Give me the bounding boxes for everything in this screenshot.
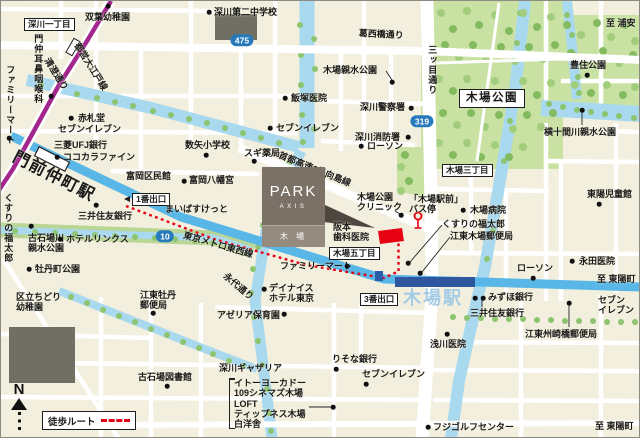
property-name: PARK xyxy=(262,183,325,200)
label-mitsubishi-ufj-bank: 三菱UFJ銀行 xyxy=(54,140,107,150)
dot-koto-kiba-post-office xyxy=(418,271,423,276)
dot-family-mart-kiba xyxy=(345,264,350,269)
label-maibasuketto: まいばすけっと xyxy=(165,204,228,214)
north-arrow-icon xyxy=(11,398,27,410)
walk-route-label: 徒歩ルート xyxy=(48,414,96,428)
label-to-urayasu: 至 浦安 xyxy=(606,18,636,28)
label-koto-kiba-post-office: 江東木場郵便局 xyxy=(450,231,513,241)
dot-mizuho-bank xyxy=(473,296,478,301)
dot-futaba-kindergarten xyxy=(106,4,111,9)
dot-kiba-hospital xyxy=(461,208,466,213)
label-iizuka-clinic: 飯塚医院 xyxy=(291,93,327,103)
label-koishiba-library: 古石場図書館 xyxy=(138,372,192,382)
label-tomioka-hachimangu: 富岡八幡宮 xyxy=(189,175,234,185)
label-tomioka-kuminkan: 富岡区民館 xyxy=(126,171,171,181)
label-seven-eleven-east: セブンイレブン xyxy=(598,295,634,316)
dot-dainice-hotel-tokyo xyxy=(262,287,267,292)
label-to-toyocho-east: 至 東陽町 xyxy=(597,274,636,284)
dot-monnaka-ent-clinic xyxy=(49,94,54,99)
label-gatharia-facilities: イトーヨーカドー109シネマズ木場LOFTティップネス木場白洋舎 xyxy=(229,378,306,429)
label-smbc-kiba: 三井住友銀行 xyxy=(470,308,524,318)
dot-nagata-clinic xyxy=(570,259,575,264)
dot-lawson-north xyxy=(359,144,364,149)
dot-fukagawa-police xyxy=(409,106,414,111)
label-tokyo-metro-tozai-line: 東京メトロ東西線 xyxy=(182,230,254,260)
dot-seven-eleven-south xyxy=(364,382,369,387)
label-koto-botan-post-office: 江東牡丹郵便局 xyxy=(140,290,176,311)
label-to-toyocho-south: 至 東陽町 xyxy=(595,421,634,431)
property-card-park-axis-kiba: PARK AXIS 木 場 xyxy=(262,167,325,247)
label-kiba-shinsui-koen: 木場親水公園 xyxy=(323,65,377,75)
label-chidori-kindergarten: 区立ちどり幼稚園 xyxy=(16,292,61,313)
label-yokojukkengawa-shinsui-koen: 横十間川親水公園 xyxy=(544,127,616,137)
dot-koishibagawa-shinsui-koen xyxy=(29,224,34,229)
dot-gatharia-facilities xyxy=(331,405,336,410)
label-toei-oedo-line: 都営大江戸線 xyxy=(72,41,109,92)
label-fukagawa-dai2-junior-high: 深川第二中学校 xyxy=(214,7,277,17)
property-brand: AXIS xyxy=(262,204,325,210)
label-cocokara-fine: ココカラファイン xyxy=(63,152,135,162)
label-mizuho-bank: みずほ銀行 xyxy=(488,292,533,302)
dot-toyo-jidokan xyxy=(597,202,602,207)
label-botancho-koen: 牡丹町公園 xyxy=(35,264,80,274)
label-kiyosumi-dori: 清澄通り xyxy=(42,56,70,92)
dot-akafudado xyxy=(69,116,74,121)
area-access-map: PARK AXIS 木 場 徒歩ルート N 深川一丁目双葉幼稚園深川第二中学校葛… xyxy=(0,0,640,438)
dot-cocokara-fine xyxy=(55,155,60,160)
label-eitai-dori: 永代通り xyxy=(221,271,255,302)
label-fukagawa-police: 深川警察署 xyxy=(360,102,405,112)
label-kiba-3chome: 木場三丁目 xyxy=(442,164,493,177)
label-kiba-station-big: 木場駅 xyxy=(403,288,463,309)
dot-tomioka-hachimangu xyxy=(182,179,187,184)
label-hotel-links: ホテルリンクス xyxy=(66,234,129,244)
label-asakawa-clinic: 浅川医院 xyxy=(430,339,466,349)
dot-koto-botan-post-office xyxy=(151,311,156,316)
label-fukagawa-gatharia: 深川ギャザリア xyxy=(219,363,282,373)
label-kiba-hospital: 木場病院 xyxy=(470,205,506,215)
label-monnaka-ent-clinic: 門仲耳鼻咽喉科 xyxy=(33,34,43,104)
label-akafudado: 赤札堂 xyxy=(78,113,105,123)
label-fuji-golf-center: フジゴルフセンター xyxy=(433,422,514,432)
dot-smbc-monzen xyxy=(94,203,99,208)
label-kazuya-elementary: 数矢小学校 xyxy=(185,140,230,150)
label-smbc-monzen: 三井住友銀行 xyxy=(78,211,132,221)
dot-asakawa-clinic xyxy=(445,332,450,337)
label-seven-eleven-monzen: セブンイレブン xyxy=(58,124,121,134)
label-sugi-drug: スギ薬局 xyxy=(244,148,280,158)
label-lawson-east: ローソン xyxy=(517,263,553,273)
dot-azalea-hoikuen xyxy=(282,312,287,317)
dot-kusuri-fukutaro-east xyxy=(406,261,411,266)
labels-layer: PARK AXIS 木 場 徒歩ルート N 深川一丁目双葉幼稚園深川第二中学校葛… xyxy=(1,1,639,437)
walk-route-line-sample xyxy=(101,419,130,422)
label-family-mart-kiba: ファミリーマート xyxy=(280,261,352,271)
property-place: 木 場 xyxy=(262,225,325,247)
walk-route-legend: 徒歩ルート xyxy=(42,411,136,430)
label-toyosumi-koen: 豊住公園 xyxy=(570,60,606,70)
property-card-top: PARK AXIS xyxy=(262,167,325,225)
dot-botancho-koen xyxy=(27,267,32,272)
label-futaba-kindergarten: 双葉幼稚園 xyxy=(85,12,130,22)
dot-iizuka-clinic xyxy=(283,96,288,101)
dot-fukagawa-fire xyxy=(406,135,411,140)
label-sakamoto-dental: 阪本歯科医院 xyxy=(333,222,369,243)
label-seven-eleven-south: セブンイレブン xyxy=(362,369,425,379)
dot-toyosumi-koen xyxy=(585,73,590,78)
label-lawson-north: ローソン xyxy=(367,141,403,151)
dot-koto-suzakibashi-post-office xyxy=(567,301,572,306)
dot-family-mart-monzen xyxy=(7,136,12,141)
dot-yokojukkengawa-shinsui-koen xyxy=(580,108,585,113)
label-fukagawa-1chome: 深川一丁目 xyxy=(24,18,75,31)
label-koto-suzakibashi-post-office: 江東州崎橋郵便局 xyxy=(525,329,597,339)
dot-risona-bank xyxy=(334,367,339,372)
dot-mizuho-bank xyxy=(481,296,486,301)
exit-arrow-icon xyxy=(124,196,130,202)
label-dainice-hotel-tokyo: デイナイスホテル東京 xyxy=(269,283,314,304)
label-mitsume-dori: 三ッ目通り xyxy=(427,45,437,95)
label-azalea-hoikuen: アゼリア保育園 xyxy=(217,310,280,320)
dot-koishiba-library xyxy=(165,384,170,389)
dot-seven-eleven-north xyxy=(268,126,273,131)
label-kiba-5chome: 木場五丁目 xyxy=(329,247,380,260)
dot-sugi-drug xyxy=(252,159,257,164)
label-exit-3: 3番出口 xyxy=(360,293,398,306)
compass-n-label: N xyxy=(8,382,30,397)
route-badge-10: 10 xyxy=(156,230,174,242)
label-family-mart-monzen: ファミリーマート xyxy=(5,65,15,145)
label-kiba-koen-clinic: 木場公園クリニック xyxy=(357,192,402,213)
label-toyo-jidokan: 東陽児童館 xyxy=(587,189,632,199)
dot-lawson-east xyxy=(531,276,536,281)
label-kiba-ekimae-bus-stop: 「木場駅前」バス停 xyxy=(409,194,463,215)
dot-kiba-shinsui-koen xyxy=(390,80,395,85)
compass-north-indicator: N xyxy=(8,382,30,434)
dot-hotel-links xyxy=(58,237,63,242)
route-badge-319: 319 xyxy=(410,115,433,127)
route-badge-475: 475 xyxy=(230,34,253,46)
label-kiba-koen-label: 木場公園 xyxy=(459,89,525,108)
north-arrow-tail xyxy=(18,412,21,434)
label-kusuri-fukutaro-west: くすりの福太郎 xyxy=(3,193,13,263)
label-nagata-clinic: 永田医院 xyxy=(579,256,615,266)
dot-kiba-koen-clinic xyxy=(399,213,404,218)
label-kasaibashi-dori: 葛西橋通り xyxy=(358,28,403,41)
dot-fuji-golf-center xyxy=(426,425,431,430)
label-risona-bank: りそな銀行 xyxy=(332,354,377,364)
label-seven-eleven-north: セブンイレブン xyxy=(276,123,339,133)
label-kusuri-fukutaro-east: くすりの福太郎 xyxy=(442,219,505,229)
dot-fukagawa-dai2-junior-high xyxy=(207,10,212,15)
dot-kazuya-elementary xyxy=(204,153,209,158)
